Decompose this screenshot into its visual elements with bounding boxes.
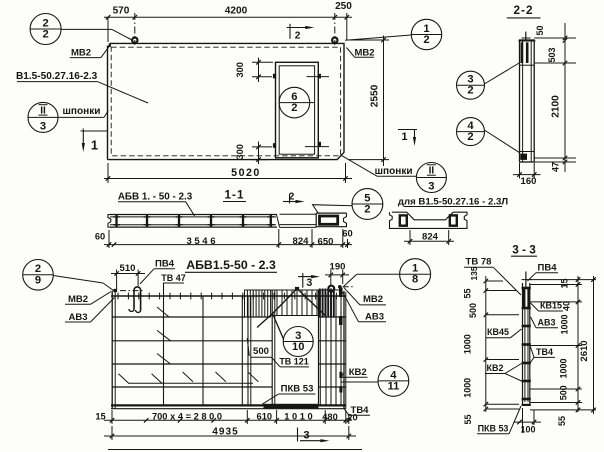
svg-text:60: 60 (342, 229, 352, 239)
svg-text:5020: 5020 (231, 167, 261, 179)
svg-text:500: 500 (468, 303, 478, 318)
svg-text:500: 500 (559, 385, 569, 400)
svg-text:700 x 4 = 2 8 0 0: 700 x 4 = 2 8 0 0 (152, 412, 222, 422)
svg-text:4935: 4935 (212, 427, 238, 438)
svg-text:2-2: 2-2 (514, 4, 534, 17)
svg-text:480: 480 (322, 412, 338, 422)
svg-text:АБВ1.5-50 - 2.3: АБВ1.5-50 - 2.3 (186, 258, 276, 272)
svg-text:1000: 1000 (463, 378, 473, 398)
svg-text:ПВ4: ПВ4 (537, 263, 557, 274)
svg-text:2: 2 (42, 29, 48, 41)
svg-text:АВ3: АВ3 (365, 311, 384, 322)
svg-text:КВ15: КВ15 (540, 301, 562, 311)
svg-text:650: 650 (318, 236, 334, 247)
svg-text:510: 510 (120, 263, 136, 274)
svg-text:3 - 3: 3 - 3 (512, 244, 536, 257)
svg-text:250: 250 (335, 1, 352, 12)
svg-text:шпонки: шпонки (63, 106, 101, 117)
svg-text:МВ2: МВ2 (71, 48, 91, 59)
svg-text:АБВ 1. - 50 - 2.3: АБВ 1. - 50 - 2.3 (118, 192, 193, 203)
svg-text:3 5 4 6: 3 5 4 6 (186, 236, 215, 247)
svg-text:МВ2: МВ2 (363, 294, 383, 305)
svg-text:1 0 1 0: 1 0 1 0 (284, 412, 312, 422)
svg-text:55: 55 (557, 416, 567, 426)
svg-text:для В1.5-50.27.16 - 2.3Л: для В1.5-50.27.16 - 2.3Л (398, 196, 508, 207)
svg-text:ТВ 121: ТВ 121 (279, 357, 308, 367)
svg-text:60: 60 (95, 232, 105, 242)
svg-text:АВ3: АВ3 (538, 317, 556, 327)
svg-text:2: 2 (467, 85, 473, 97)
svg-text:2: 2 (423, 34, 429, 46)
svg-text:15: 15 (95, 412, 105, 422)
svg-text:1: 1 (401, 131, 407, 143)
svg-text:В1.5-50.27.16-2.3: В1.5-50.27.16-2.3 (16, 71, 98, 82)
svg-text:55: 55 (463, 415, 473, 425)
svg-text:50: 50 (535, 26, 545, 36)
svg-text:8: 8 (412, 274, 418, 286)
svg-text:2610: 2610 (579, 340, 590, 361)
svg-text:АВ3: АВ3 (68, 312, 87, 323)
svg-text:шпонки: шпонки (375, 166, 413, 177)
svg-text:2550: 2550 (370, 84, 381, 107)
svg-text:2: 2 (291, 102, 297, 114)
svg-text:4200: 4200 (225, 6, 248, 17)
svg-text:2: 2 (295, 30, 301, 41)
svg-text:ТВ4: ТВ4 (536, 347, 553, 357)
svg-text:ПВ4: ПВ4 (155, 259, 175, 270)
svg-text:МВ2: МВ2 (68, 294, 88, 305)
svg-text:1000: 1000 (463, 334, 473, 354)
svg-text:2: 2 (289, 192, 295, 203)
svg-text:300: 300 (235, 144, 245, 159)
svg-text:1-1: 1-1 (225, 189, 245, 202)
svg-text:500: 500 (253, 346, 269, 357)
svg-text:55: 55 (463, 289, 473, 299)
svg-text:3: 3 (303, 430, 309, 442)
svg-text:824: 824 (293, 236, 310, 247)
svg-text:3: 3 (428, 181, 434, 193)
svg-text:40: 40 (562, 301, 572, 311)
svg-text:570: 570 (113, 6, 130, 17)
svg-text:1000: 1000 (560, 315, 570, 335)
svg-text:2: 2 (364, 204, 370, 216)
svg-text:9: 9 (35, 274, 41, 286)
svg-text:11: 11 (387, 380, 399, 392)
svg-text:3: 3 (40, 121, 46, 133)
svg-text:2100: 2100 (551, 95, 562, 118)
svg-text:15: 15 (560, 279, 570, 289)
svg-text:ПКВ 53: ПКВ 53 (281, 383, 314, 394)
svg-text:КВ45: КВ45 (487, 327, 509, 337)
svg-text:824: 824 (422, 232, 439, 243)
svg-text:10: 10 (292, 341, 304, 353)
svg-text:300: 300 (235, 62, 245, 77)
svg-text:ПКВ 53: ПКВ 53 (478, 423, 509, 433)
svg-text:47: 47 (551, 162, 561, 172)
svg-text:135: 135 (469, 266, 479, 280)
svg-text:ТВ 78: ТВ 78 (466, 257, 492, 268)
svg-text:КВ2: КВ2 (487, 363, 504, 373)
svg-text:КВ2: КВ2 (349, 367, 367, 378)
svg-text:ТВ 47: ТВ 47 (161, 273, 185, 283)
svg-text:610: 610 (257, 412, 273, 422)
svg-text:3: 3 (306, 277, 312, 289)
svg-text:2: 2 (467, 131, 473, 143)
svg-text:503: 503 (547, 48, 557, 63)
svg-text:1000: 1000 (559, 359, 569, 379)
svg-text:1: 1 (91, 138, 98, 153)
